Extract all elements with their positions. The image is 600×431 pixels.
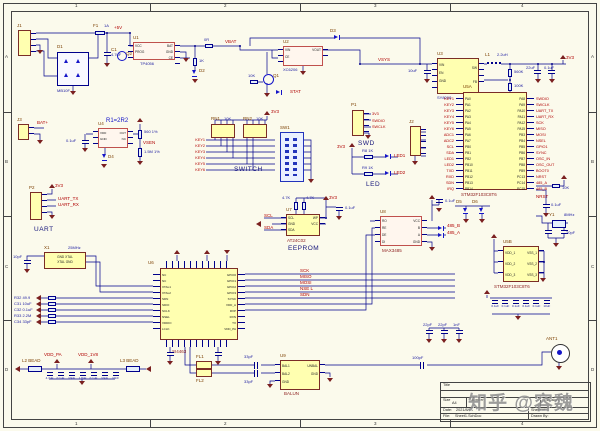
annotation-text: LED xyxy=(366,182,380,189)
led-symbol xyxy=(192,70,196,74)
ref-des: U7 xyxy=(286,208,292,213)
gnd-symbol xyxy=(146,366,151,372)
part-value: 10K xyxy=(562,186,569,190)
ic-pins xyxy=(93,131,98,144)
capacitor-symbol xyxy=(456,330,463,334)
zone-tick xyxy=(3,320,11,321)
capacitor-symbol xyxy=(254,362,258,369)
part-value: MAX3485 xyxy=(382,249,402,254)
gnd-symbol xyxy=(104,63,110,67)
ref-des: U2 xyxy=(283,40,289,45)
pin-names: VINENGND xyxy=(439,61,446,85)
part-value: C34 33pF xyxy=(14,320,32,324)
part-value: MB10F xyxy=(57,89,70,93)
gnd-symbol xyxy=(15,366,20,372)
net-label: SDA xyxy=(264,226,273,231)
pin-name: VDD_PA xyxy=(206,326,236,332)
gnd-symbol xyxy=(426,339,432,343)
pin-name: CE xyxy=(155,55,173,61)
capacitor-symbol xyxy=(441,330,448,334)
pin-name: UNBAL xyxy=(300,362,318,370)
part-value: 33pF xyxy=(244,380,253,384)
part-value: C32 0.1uF xyxy=(14,308,33,312)
part-value: SI4463 xyxy=(172,350,186,355)
gnd-symbol xyxy=(101,164,107,168)
capacitor-cell: 0.1uF xyxy=(490,300,500,308)
rf-filter xyxy=(196,361,212,369)
zone-tick xyxy=(450,3,451,11)
zone-tick xyxy=(300,3,301,11)
esd-diode-symbol xyxy=(479,208,483,212)
pin-names: VCCPROG xyxy=(135,43,144,55)
gnd-symbol xyxy=(535,79,541,83)
diode-bar xyxy=(463,213,468,214)
bridge-rectifier xyxy=(57,52,89,86)
part-value: BALUN xyxy=(284,392,299,397)
part-value: R8 1K xyxy=(362,149,373,153)
pin-name: SW xyxy=(459,61,477,75)
net-label: NRST xyxy=(536,195,548,200)
gnd-symbol xyxy=(300,71,306,75)
annotation-text: SWITCH xyxy=(234,167,263,174)
part-value: 20pF xyxy=(566,231,575,235)
part-value: R9 1K xyxy=(362,166,373,170)
gnd-symbol xyxy=(82,148,88,152)
ref-des: Q1 xyxy=(273,74,279,79)
resistor-symbol xyxy=(552,184,560,188)
diode-bar xyxy=(390,154,391,159)
ic-pins xyxy=(166,261,232,268)
pin-name: CE xyxy=(285,54,290,61)
gnd-symbol xyxy=(24,269,30,273)
net-label: 485_B xyxy=(447,224,460,229)
power-net-label: 3V3 xyxy=(337,145,345,150)
ref-des: ANT1 xyxy=(546,337,558,342)
gnd-symbol xyxy=(192,79,198,83)
resistor-symbol xyxy=(48,314,56,318)
diode-bar xyxy=(479,213,484,214)
annotation-text: EEPROM xyxy=(288,246,319,253)
net-labels: KEY1KEY2KEY3KEY4KEY5KEY6ADC1ADC2SCLSDALE… xyxy=(426,96,454,192)
part-value: 0.1uF xyxy=(531,304,541,308)
ic-pins xyxy=(128,45,133,58)
capacitor-symbol xyxy=(424,70,431,74)
xtal-module: GND XTAL XTAL GND xyxy=(44,252,86,269)
annotation-text: SWD xyxy=(358,141,375,148)
zone-tick xyxy=(150,3,151,11)
pin-names: NCNCXTAL1XTAL2SDNSDIOSCLKNSELVDDIOLCLK xyxy=(162,272,172,332)
ic-pins xyxy=(539,250,544,275)
ic-pins xyxy=(128,131,133,144)
pin-row: XTAL GND xyxy=(45,261,85,264)
power-net-label: 3V3 xyxy=(55,184,63,189)
gnd-symbol xyxy=(436,208,442,212)
ic-pins xyxy=(278,49,283,62)
capacitor-cell: 0.1uF xyxy=(55,372,66,380)
pin-name: NC xyxy=(110,136,126,142)
watermark-text: 知乎 @容魏 xyxy=(446,388,596,415)
pin-name: BAL1 xyxy=(282,362,290,370)
pin-names: VDDGND xyxy=(100,130,107,142)
pin-names: ROREDEDI xyxy=(382,218,387,246)
part-value: 10pF xyxy=(13,255,22,259)
decoupling-caps: 0.1uF0.1uF0.1uF0.1uF0.1uF10uF xyxy=(490,300,552,308)
zone-tick xyxy=(300,420,301,428)
pin-names: BAL1BAL2GND xyxy=(282,362,290,386)
resistor-symbol xyxy=(250,80,258,84)
inductor-symbol xyxy=(487,62,501,64)
part-value: 1.8pF xyxy=(77,376,88,380)
part-value: 10pF xyxy=(99,376,110,380)
net-label: KEY6 xyxy=(188,167,205,173)
pin-name: DE xyxy=(382,232,387,239)
power-port-icon xyxy=(137,118,143,122)
ref-des: J3 xyxy=(17,118,22,123)
part-value: 100K xyxy=(514,84,523,88)
pin-name: VSS_2 xyxy=(518,259,537,270)
capacitor-symbol xyxy=(104,52,111,56)
part-value: STM32F103C8T6 xyxy=(461,193,497,198)
power-net-label: VDD_PA xyxy=(44,353,62,358)
gnd-symbol xyxy=(365,135,371,139)
part-value: 10K xyxy=(224,117,231,121)
part-value: 0.1uF xyxy=(88,376,99,380)
gnd-symbol xyxy=(37,50,43,54)
ref-des: FL2 xyxy=(196,379,204,384)
ic-pins xyxy=(479,63,484,82)
sma-center-pin xyxy=(557,350,562,355)
part-value: 0.1uF xyxy=(500,304,510,308)
annotation-text: UART xyxy=(34,227,54,234)
ic-pins xyxy=(320,364,325,374)
ref-des: Y1 xyxy=(549,213,555,218)
resistor-symbol xyxy=(294,202,298,210)
pin-name: PC15 xyxy=(496,186,525,192)
gnd-symbol xyxy=(215,361,221,365)
power-port-icon xyxy=(349,143,355,147)
part-value: 0.1uF xyxy=(551,203,561,207)
zone-tick xyxy=(3,112,11,113)
part-value: 10pF xyxy=(66,376,77,380)
tvs-diode-symbol xyxy=(438,233,442,237)
gnd-symbol xyxy=(479,219,485,223)
diode-bar xyxy=(390,171,391,176)
ref-des: U9 xyxy=(280,354,286,359)
ref-des: U4 xyxy=(98,122,104,127)
capacitor-symbol xyxy=(254,370,258,377)
net-labels: 3V3SWDIOSWCLK xyxy=(372,111,386,131)
ref-des: U3 xyxy=(437,52,443,57)
gnd-symbol xyxy=(36,319,41,325)
pin-names: VCCBAGND xyxy=(402,218,420,246)
part-value: 4.7uF xyxy=(44,376,55,380)
diode-bar xyxy=(443,233,444,238)
power-net-label: 3V3 xyxy=(566,56,574,61)
ic-pins xyxy=(275,364,280,382)
net-label: VSEN xyxy=(143,141,155,146)
part-value: 1K xyxy=(199,59,204,63)
rf-filter xyxy=(196,369,212,377)
gnd-symbol xyxy=(441,339,447,343)
pin-name: VDD_1 xyxy=(505,248,515,259)
capacitor-cell: 10pF xyxy=(99,372,110,380)
pin-names: PA0PA1PA2PA3PA4PA5PA6PA7PB0PB1PB2PB10PB1… xyxy=(465,96,473,192)
battery-connector xyxy=(18,124,29,140)
gnd-symbol xyxy=(267,384,273,388)
gnd-symbol xyxy=(308,179,314,183)
part-value: AT24C02 xyxy=(287,239,306,244)
ic-pins xyxy=(153,274,160,330)
resistor-symbol xyxy=(364,172,373,176)
net-label: VBAT xyxy=(225,40,236,45)
pin-names: PA8PA9PA10PA11PA12PA15PB3PB4PB5PB6PB7PB8… xyxy=(496,96,525,192)
power-port-icon xyxy=(264,111,270,115)
gnd-symbol xyxy=(515,316,521,320)
capacitor-symbol xyxy=(534,70,541,74)
net-label: SWCLK xyxy=(372,124,386,131)
ref-des: F1 xyxy=(93,24,98,29)
zener-symbol xyxy=(102,154,106,158)
pin-name: VOUT xyxy=(303,47,321,54)
capacitor-symbol xyxy=(545,230,552,234)
part-value: 4.7K xyxy=(306,196,314,200)
power-port-icon xyxy=(174,250,180,254)
capacitor-symbol xyxy=(543,204,550,208)
net-label: BAT+ xyxy=(37,121,48,126)
gnd-symbol xyxy=(327,378,333,382)
net-label: VSYS xyxy=(378,58,390,63)
resistor-symbol xyxy=(48,296,56,300)
ref-des: J2 xyxy=(409,120,414,125)
pin-name: VSS_1 xyxy=(518,248,537,259)
file-value: Sheet1.SchDoc xyxy=(455,415,481,419)
bus-net-label: SCK xyxy=(300,269,309,274)
ic-pins xyxy=(498,250,503,275)
part-value: 10K xyxy=(256,117,263,121)
ic-pins xyxy=(166,340,232,347)
drawn-by-label: Drawn By: xyxy=(531,415,549,419)
capacitor-symbol xyxy=(336,207,343,211)
file-label: File: xyxy=(443,415,450,419)
ref-des: D6 xyxy=(472,200,478,205)
led-symbol xyxy=(385,171,389,175)
pin-name: DI xyxy=(382,239,387,246)
ref-des: D3 xyxy=(330,29,336,34)
pin-name: GND xyxy=(402,239,420,246)
connector-pins xyxy=(364,113,369,135)
gnd-symbol xyxy=(553,243,559,247)
capacitor-cell: 0.1uF xyxy=(511,300,521,308)
pin-names: VOUT xyxy=(303,47,321,54)
capacitor-symbol xyxy=(48,302,56,306)
part-value: 10nF xyxy=(110,376,121,380)
pin-name: VDD_3 xyxy=(505,270,515,281)
capacitor-symbol xyxy=(24,260,31,264)
ic-pins xyxy=(422,220,427,243)
led-symbol xyxy=(276,90,280,94)
pin-name: GND xyxy=(282,378,290,386)
gnd-symbol xyxy=(456,339,462,343)
zone-tick xyxy=(3,216,11,217)
zone-tick xyxy=(150,420,151,428)
net-label: LED2 xyxy=(394,171,405,176)
bus-net-label: NSE L xyxy=(300,287,313,292)
resistor-symbol xyxy=(364,155,373,159)
esd-diode-symbol xyxy=(463,208,467,212)
part-value: 1nF xyxy=(453,323,460,327)
part-value: 22pF xyxy=(438,323,447,327)
pin-name: GND xyxy=(100,136,107,142)
ic-pins xyxy=(375,220,380,243)
resistor-symbol xyxy=(508,69,512,77)
part-value: 0.1uF xyxy=(521,304,531,308)
gnd-symbol xyxy=(79,381,85,385)
pin-name: LCLK xyxy=(162,326,172,332)
part-value: 560K xyxy=(514,70,523,74)
part-value: 0.1uF xyxy=(55,376,66,380)
power-port-icon xyxy=(484,290,490,294)
part-value: XC6206 xyxy=(283,68,297,72)
ferrite-bead xyxy=(28,366,42,372)
ref-des: U8 xyxy=(380,210,386,215)
resistor-symbol xyxy=(508,83,512,91)
pin-name: VDD_2 xyxy=(505,259,515,270)
part-value: 8MHz xyxy=(564,213,574,217)
pin-names: UNBALGND xyxy=(300,362,318,378)
pin-name: VIN xyxy=(439,61,446,69)
connector-pins xyxy=(31,33,36,52)
gnd-symbol xyxy=(412,161,418,165)
ref-des: U6 xyxy=(148,261,154,266)
zone-tick xyxy=(589,216,597,217)
pin-names: VDD_1VDD_2VDD_3 xyxy=(505,248,515,281)
diode-bar xyxy=(192,76,197,77)
led-symbol xyxy=(385,154,389,158)
pin-names: VSS_1VSS_2VSS_3 xyxy=(518,248,537,281)
ref-des: P2 xyxy=(29,186,35,191)
part-value: C31 10uF xyxy=(14,302,32,306)
pin-name: VIN xyxy=(285,47,290,54)
capacitor-symbol xyxy=(215,352,222,356)
part-value: STM32F103C8T6 xyxy=(494,285,530,290)
gnd-symbol xyxy=(224,250,230,254)
uart-connector xyxy=(30,192,42,220)
resistor-symbol xyxy=(302,202,306,210)
capacitor-symbol xyxy=(436,199,443,203)
ic-pins xyxy=(175,45,180,64)
diode-bar xyxy=(102,160,107,161)
capacitor-symbol xyxy=(548,70,555,74)
net-label: SCL xyxy=(264,214,273,219)
capacitor-cell: 4.7uF xyxy=(44,372,55,380)
power-net-label: 3V3 xyxy=(329,196,337,201)
ref-des: RN2 xyxy=(243,117,252,122)
resistor-network xyxy=(243,124,267,138)
ic-pins xyxy=(527,98,534,190)
pin-name: VSS_3 xyxy=(518,270,537,281)
part-value: 1.5M 1% xyxy=(144,150,160,154)
ic-pins xyxy=(320,217,325,226)
power-net-label: 3V3 xyxy=(271,110,279,115)
part-value: 560 1% xyxy=(144,130,158,134)
ic-pins xyxy=(432,63,437,88)
fuse-symbol xyxy=(95,31,105,35)
part-value: 100pF xyxy=(412,356,423,360)
part-value: 1A xyxy=(104,24,109,28)
pin-name: VCC xyxy=(402,218,420,225)
pin-name: PROG xyxy=(135,49,144,55)
diode-bar xyxy=(443,226,444,231)
capacitor-cell: 10uF xyxy=(542,300,552,308)
resistor-symbol xyxy=(138,148,142,157)
capacitor-cell: 10nF xyxy=(110,372,121,380)
part-value: 22uF xyxy=(526,66,535,70)
gnd-symbol xyxy=(264,93,270,97)
ref-des: X1 xyxy=(44,246,50,251)
power-port-icon xyxy=(204,250,210,254)
debug-connector xyxy=(410,126,421,156)
ref-des: P1 xyxy=(351,103,357,108)
ferrite-bead xyxy=(126,366,140,372)
ref-des: D2 xyxy=(199,69,205,74)
net-label: LED1 xyxy=(394,154,405,159)
part-value: 10K xyxy=(248,74,255,78)
pin-name: EN xyxy=(439,69,446,77)
resistor-symbol xyxy=(193,58,197,66)
ref-des: L3 BEAD xyxy=(120,359,139,364)
gnd-symbol xyxy=(549,79,555,83)
resistor-network xyxy=(211,124,235,138)
net-label: IRQ xyxy=(426,186,454,192)
net-label: UART_RX xyxy=(58,203,79,208)
pin-name: GND xyxy=(300,370,318,378)
pin-name: GND xyxy=(439,77,446,85)
ref-des: J1 xyxy=(17,24,22,29)
gnd-symbol xyxy=(429,247,435,251)
capacitor-cell: 1.8pF xyxy=(77,372,88,380)
connector-pins xyxy=(421,129,426,155)
power-port-icon xyxy=(88,359,94,363)
net-label: STAT xyxy=(290,90,301,95)
capacitor-symbol xyxy=(82,140,89,144)
ref-des: L1 xyxy=(485,53,490,58)
zone-tick xyxy=(589,320,597,321)
gnd-symbol xyxy=(137,161,143,165)
net-label: UART_TX xyxy=(58,197,78,202)
part-value: 0.1uF xyxy=(345,206,355,210)
ref-des: RN1 xyxy=(211,117,220,122)
part-value: 2.2uH xyxy=(497,53,508,57)
pin-name: VCC xyxy=(300,221,318,227)
power-port-icon xyxy=(54,359,60,363)
capacitor-cell: 0.1uF xyxy=(521,300,531,308)
part-value: 25MHz xyxy=(68,246,81,250)
pin-names: WPVCC xyxy=(300,215,318,227)
part-value: 4.7K xyxy=(282,196,290,200)
bus-net-label: MISO xyxy=(300,275,312,280)
schematic-sheet: 1 2 3 4 1 2 3 4 A B C D A B C D J1 D1 MB… xyxy=(0,0,600,431)
gnd-symbol xyxy=(49,215,55,219)
connector-pins xyxy=(42,194,47,214)
dip-switch xyxy=(280,132,304,182)
bus-net-label: SDN xyxy=(300,293,310,298)
gnd-symbol xyxy=(256,221,261,227)
ref-des: D5 xyxy=(456,200,462,205)
pin-name: B xyxy=(402,225,420,232)
ref-des: D1 xyxy=(57,45,63,50)
part-value: 0.1uF xyxy=(66,139,76,143)
part-value: 0.1uF xyxy=(445,199,455,203)
